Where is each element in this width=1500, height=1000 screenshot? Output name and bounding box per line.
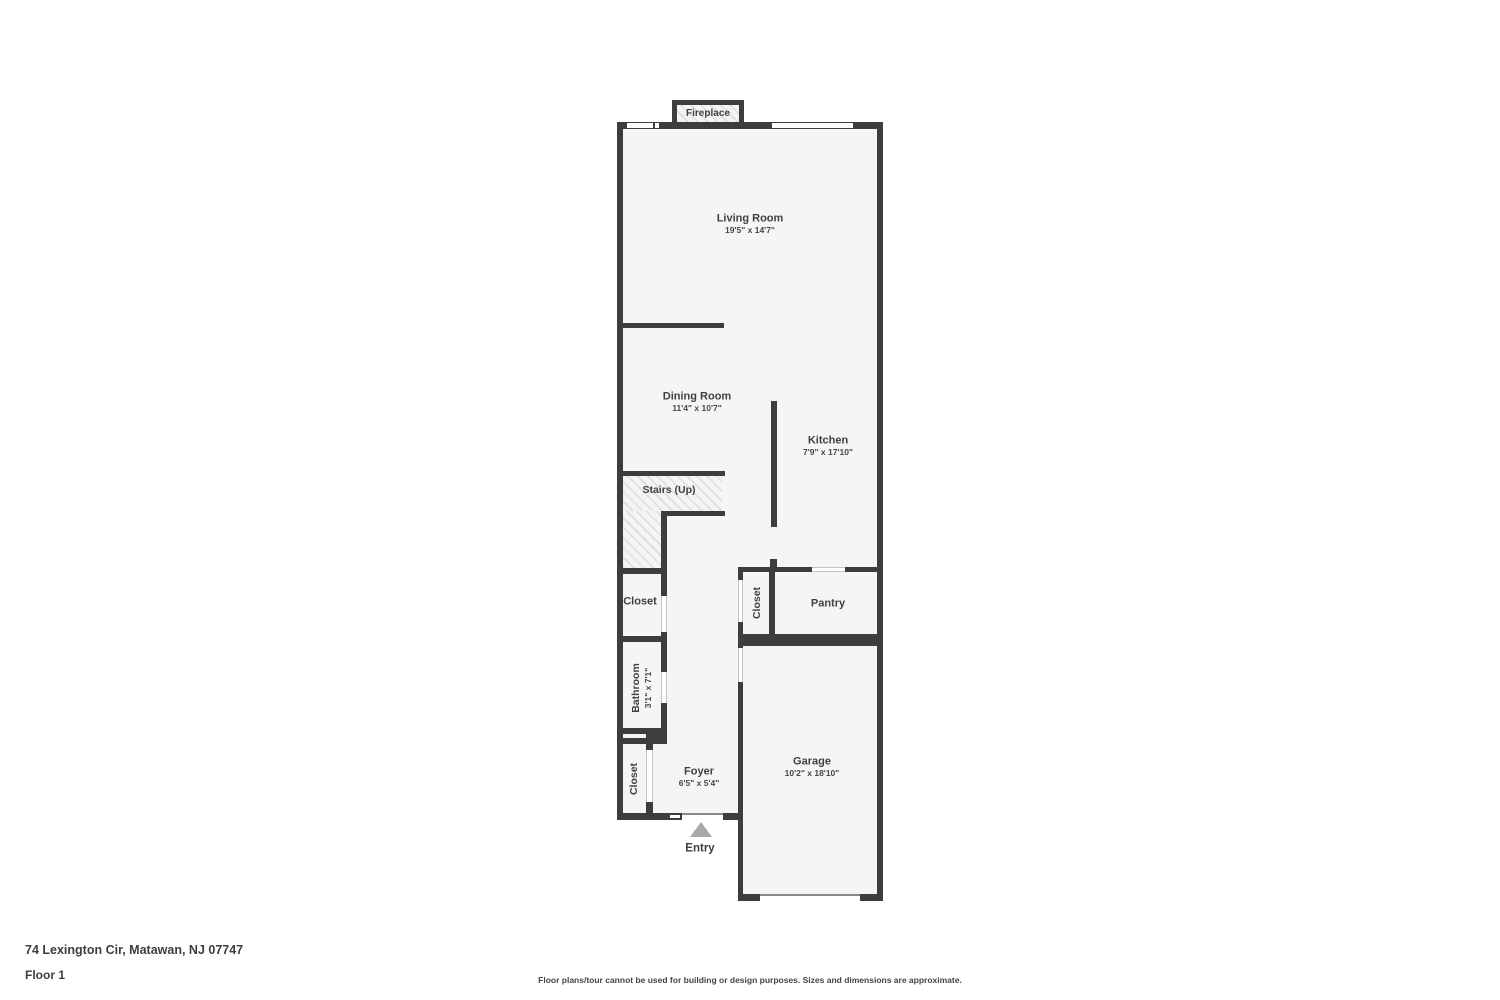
- wall-stairs-bottom: [617, 568, 662, 574]
- fireplace-label: Fireplace: [686, 108, 730, 119]
- footer-disclaimer: Floor plans/tour cannot be used for buil…: [538, 975, 962, 985]
- entry-opening: [682, 813, 723, 820]
- wall-garage-bottom-right-corner: [860, 894, 883, 901]
- room-label-foyer: Foyer: [684, 766, 714, 779]
- wall-stairs-vertical-upper: [661, 511, 667, 596]
- room-dims-living-room: 19'5" x 14'7": [725, 226, 775, 236]
- room-dims-dining-room: 11'4" x 10'7": [672, 404, 721, 414]
- garage-door-opening: [760, 894, 860, 901]
- entry-door-threshold: [668, 813, 682, 820]
- wall-closet-pantry-divider: [769, 572, 775, 634]
- wall-living-dining-divider: [617, 323, 724, 328]
- wall-closet-bathroom-divider: [617, 636, 667, 642]
- wall-stairs-inner-horizontal: [661, 511, 725, 516]
- floor-plan-page: Fireplace Living Room 19'5" x 14'7: [0, 0, 1500, 1000]
- room-dims-garage: 10'2" x 18'10": [785, 769, 840, 779]
- room-dims-foyer: 6'5" x 5'4": [679, 779, 719, 789]
- wall-garage-bottom-left-corner: [738, 894, 760, 901]
- door-opening-bathroom: [661, 672, 667, 703]
- room-label-living-room: Living Room: [717, 213, 784, 226]
- door-opening-foyer-garage: [738, 648, 743, 682]
- bathroom-name: Bathroom: [630, 663, 642, 713]
- room-dims-kitchen: 7'9" x 17'10": [803, 448, 853, 458]
- wall-right: [877, 122, 883, 901]
- room-label-garage: Garage: [793, 756, 831, 769]
- room-label-hall-closet: Closet: [623, 596, 657, 609]
- room-label-foyer-closet: Closet: [628, 763, 640, 795]
- bathroom-dims: 3'1" x 7'1": [643, 668, 653, 708]
- wall-kitchen-stub: [770, 559, 777, 567]
- stairs-hatch-strip: [623, 511, 661, 568]
- wall-stairs-top: [617, 471, 725, 476]
- wall-garage-top: [738, 634, 883, 646]
- wall-pantry-left-upper: [738, 572, 743, 580]
- wall-garage-left: [738, 682, 743, 901]
- living-room-name: Living Room: [717, 213, 784, 225]
- footer-floor-label: Floor 1: [25, 968, 65, 982]
- wall-kitchen-divider: [771, 401, 777, 527]
- door-opening-hall-closet: [661, 596, 667, 632]
- wall-pantry-top: [738, 567, 883, 572]
- room-label-dining-room: Dining Room: [663, 391, 731, 404]
- room-label-kitchen: Kitchen: [808, 435, 848, 448]
- door-opening-foyer-closet: [646, 750, 653, 802]
- room-label-stairs: Stairs (Up): [642, 484, 695, 496]
- entry-arrow-icon: [690, 822, 712, 837]
- door-opening-pantry: [812, 567, 845, 572]
- footer-address: 74 Lexington Cir, Matawan, NJ 07747: [25, 943, 243, 957]
- room-label-pantry-closet: Closet: [751, 587, 763, 619]
- window-living-room-right: [772, 122, 853, 129]
- door-opening-pantry-closet: [738, 580, 743, 622]
- room-label-bathroom: Bathroom 3'1" x 7'1": [630, 663, 654, 713]
- entry-label: Entry: [685, 842, 714, 855]
- room-label-pantry: Pantry: [811, 598, 845, 611]
- window-divider-tick: [653, 123, 655, 128]
